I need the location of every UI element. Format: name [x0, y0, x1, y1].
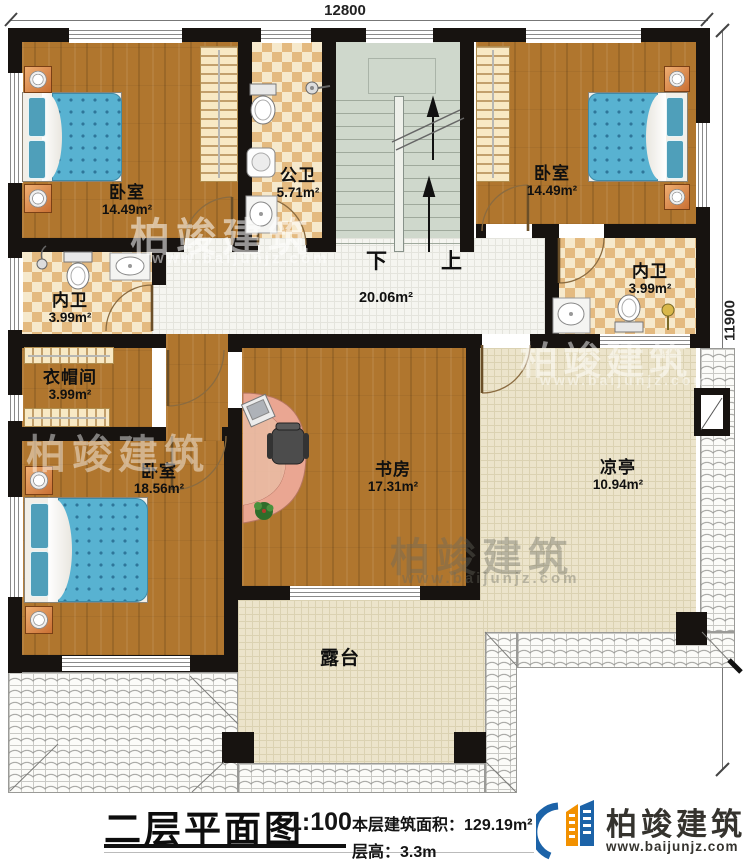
title-underline [104, 844, 346, 848]
shower-hose-inner-bath-left [37, 246, 47, 269]
room-name: 凉亭 [558, 458, 678, 477]
stair-down-label: 下 [366, 245, 387, 275]
sink-inner-bath-left [110, 253, 150, 280]
plan-scale: 1:100 [288, 808, 352, 837]
room-name: 露台 [280, 648, 400, 669]
room-area: 17.31m² [333, 479, 453, 494]
floor-height-line: 层高：3.3m [352, 838, 436, 862]
pier-diagonal [701, 398, 722, 430]
room-name: 卧室 [67, 183, 187, 202]
floor-height-value: 3.3m [400, 844, 436, 861]
stair-up-label: 上 [441, 245, 462, 275]
sink-inner-bath-right [553, 298, 590, 333]
room-area: 3.99m² [20, 310, 120, 325]
label-hallway-area: 20.06m² [326, 290, 446, 306]
room-area: 10.94m² [558, 477, 678, 492]
room-area: 18.56m² [99, 481, 219, 496]
room-area: 14.49m² [492, 183, 612, 198]
label-inner-bath-left: 内卫 3.99m² [20, 291, 120, 325]
label-inner-bath-right: 内卫 3.99m² [590, 262, 710, 296]
room-area: 5.71m² [238, 185, 358, 200]
room-area: 20.06m² [326, 290, 446, 306]
label-study: 书房 17.31m² [333, 460, 453, 494]
floor-area-label: 本层建筑面积： [352, 817, 464, 834]
floor-height-label: 层高： [352, 844, 400, 861]
room-name: 公卫 [238, 166, 358, 185]
label-bedroom-tl: 卧室 14.49m² [67, 183, 187, 217]
brand-website: www.baijunjz.com [606, 839, 739, 854]
door-leaves [152, 185, 559, 490]
eave-tip-mark [729, 660, 741, 672]
title-underline-thin [104, 852, 534, 853]
toilet-inner-bath-left [64, 252, 92, 289]
floor-plan-canvas: 12800 11900 [0, 0, 750, 866]
label-bedroom-tr: 卧室 14.49m² [492, 164, 612, 198]
floor-area-value: 129.19m² [464, 817, 533, 834]
plan-annotations-svg [0, 0, 750, 866]
room-name: 卧室 [492, 164, 612, 183]
toilet-inner-bath-right [615, 295, 643, 332]
room-name: 内卫 [590, 262, 710, 281]
label-bedroom-bl: 卧室 18.56m² [99, 462, 219, 496]
room-name: 书房 [333, 460, 453, 479]
room-name: 卧室 [99, 462, 219, 481]
fixture-inner-bath-right [662, 304, 674, 330]
room-name: 衣帽间 [10, 368, 130, 387]
brand-name: 柏竣建筑 [606, 799, 746, 844]
label-pavilion: 凉亭 10.94m² [558, 458, 678, 492]
label-terrace: 露台 [280, 648, 400, 669]
label-cloakroom: 衣帽间 3.99m² [10, 368, 130, 402]
shower-head-public-bath [306, 82, 330, 94]
floor-area-line: 本层建筑面积：129.19m² [352, 811, 533, 835]
room-name: 内卫 [20, 291, 120, 310]
toilet-public-bath [250, 84, 276, 124]
room-area: 14.49m² [67, 202, 187, 217]
room-area: 3.99m² [10, 387, 130, 402]
room-area: 3.99m² [590, 281, 710, 296]
brand-logo-icon [536, 794, 606, 864]
stair-arrows [392, 99, 464, 252]
label-public-bath: 公卫 5.71m² [238, 166, 358, 200]
sink-public-bath [246, 196, 277, 233]
